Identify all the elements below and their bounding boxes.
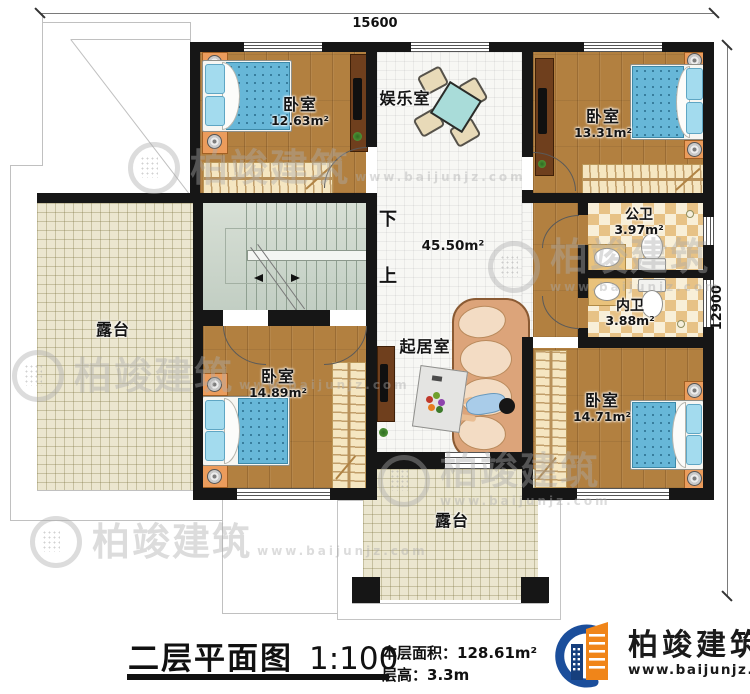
room-name: 娱乐室 (365, 90, 445, 108)
wall-segment (193, 488, 237, 500)
brand-website: www.baijunjz.com (628, 662, 750, 678)
wall-segment (703, 245, 714, 280)
room-area: 3.97m² (594, 223, 684, 237)
wardrobe (203, 162, 333, 195)
wall-segment (193, 193, 377, 203)
pillow (686, 102, 703, 134)
stair-down-label: 下 (376, 210, 400, 231)
pillow (686, 435, 702, 465)
window (703, 217, 714, 245)
wall-segment (522, 488, 577, 500)
room-area: 13.31m² (553, 126, 653, 140)
room-name: 卧室 (250, 96, 350, 114)
room-label-public-bathroom: 公卫 3.97m² (594, 207, 684, 237)
dimension-line-top (40, 13, 715, 14)
room-area: 14.71m² (556, 410, 648, 424)
stair-direction-arrow (254, 274, 263, 282)
wardrobe (332, 362, 366, 489)
brand-text-block: 柏竣建筑 www.baijunjz.com (628, 629, 750, 678)
window (445, 452, 490, 469)
terrace-left-floor (37, 203, 193, 490)
lamp-icon (207, 469, 222, 484)
roof-outline-line (42, 22, 191, 23)
room-name: 卧室 (553, 108, 653, 126)
height-value: 12900 (710, 285, 725, 330)
plant-icon (379, 428, 388, 437)
tv-icon (538, 88, 547, 134)
room-name: 卧室 (556, 392, 648, 410)
title-underline (127, 674, 389, 680)
wall-segment (489, 42, 584, 52)
flower-vase (424, 392, 448, 414)
pillow (205, 431, 225, 461)
wall-segment (490, 452, 522, 469)
person-head (499, 398, 515, 414)
floor-plan-page: 卧室 12.63m² 卧室 13.31m² 卧室 14.89m² 卧室 14.7… (0, 0, 750, 694)
brand-name: 柏竣建筑 (628, 629, 750, 662)
wall-segment (193, 310, 223, 326)
floor-area-row: 本层面积：128.61m² (382, 643, 537, 665)
lamp-icon (687, 471, 702, 486)
lamp-icon (687, 383, 702, 398)
pillow (205, 400, 225, 430)
wall-segment (588, 270, 703, 278)
floor-height-value: 3.3m (427, 666, 469, 684)
roof-outline-line (42, 14, 43, 165)
wall-segment (193, 326, 203, 500)
wall-segment (193, 203, 203, 310)
roof-diagonal-line (70, 39, 190, 195)
wall-segment (190, 42, 200, 203)
pillow (205, 64, 225, 94)
sink (594, 248, 620, 267)
lamp-icon (687, 142, 702, 157)
floor-area-value: 128.61m² (457, 644, 537, 662)
roof-outline-line (10, 165, 43, 166)
terrace-edge-line (37, 490, 194, 491)
tv-icon (380, 364, 388, 402)
room-label-bedroom-bottom-right: 卧室 14.71m² (556, 392, 648, 425)
title-text: 二层平面图 (128, 633, 293, 678)
watermark-logo-icon (30, 516, 82, 568)
wall-segment (522, 337, 533, 500)
wall-segment (578, 203, 588, 215)
wall-segment (377, 452, 445, 469)
pillow (205, 96, 225, 126)
room-name: 公卫 (594, 207, 684, 223)
window (584, 42, 662, 52)
room-label-terrace-bottom: 露台 (412, 512, 492, 530)
watermark-name: 柏竣建筑 (92, 520, 252, 564)
room-name: 起居室 (385, 338, 465, 356)
wall-segment (522, 193, 703, 203)
hall-area-value: 45.50m² (422, 238, 485, 254)
window (577, 488, 669, 500)
window (411, 42, 489, 52)
wall-segment (578, 328, 588, 337)
floor-info: 本层面积：128.61m² 层高：3.3m (382, 643, 537, 687)
hall-area-label: 45.50m² (408, 239, 498, 255)
plant-icon (353, 132, 362, 141)
room-area: 14.89m² (233, 386, 323, 400)
wall-segment (703, 327, 714, 500)
window (237, 488, 330, 500)
stair-up-label: 上 (376, 267, 400, 288)
room-label-living: 起居室 (385, 338, 465, 356)
brand-logo-svg (540, 616, 626, 692)
room-name: 露台 (412, 512, 492, 530)
room-area: 12.63m² (250, 114, 350, 128)
down-text: 下 (379, 209, 397, 230)
room-name: 内卫 (585, 298, 675, 314)
width-value: 15600 (352, 16, 397, 31)
roof-outline-line (10, 165, 11, 520)
room-name: 露台 (73, 321, 153, 339)
pillow (686, 68, 703, 100)
terrace-bottom-floor (363, 469, 538, 600)
roof-outline-line (71, 39, 191, 40)
tv-icon (353, 78, 362, 120)
wall-segment (578, 337, 703, 348)
brand-logo-icon (540, 616, 626, 692)
room-label-private-bathroom: 内卫 3.88m² (585, 298, 675, 328)
wall-segment (330, 488, 376, 500)
dimension-height-label: 12900 (710, 285, 725, 330)
stair-direction-arrow (291, 274, 300, 282)
floor-area-label: 本层面积： (382, 644, 457, 662)
room-label-terrace-left: 露台 (73, 321, 153, 339)
room-label-entertainment: 娱乐室 (365, 90, 445, 108)
lamp-icon (207, 134, 222, 149)
lamp-icon (207, 377, 222, 392)
up-text: 上 (379, 266, 397, 287)
floor-drain-icon (686, 210, 694, 218)
dimension-width-label: 15600 (340, 16, 410, 31)
room-label-bedroom-top-left: 卧室 12.63m² (250, 96, 350, 129)
wall-segment (703, 42, 714, 217)
wall-segment (522, 42, 533, 157)
room-label-bedroom-bottom-left: 卧室 14.89m² (233, 368, 323, 401)
terrace-pillar (521, 577, 549, 603)
terrace-railing-line (222, 613, 338, 614)
terrace-railing-line (352, 603, 548, 604)
wall-segment (193, 42, 244, 52)
wall-segment (669, 488, 703, 500)
wall-segment (366, 193, 377, 500)
wall-segment (37, 193, 200, 203)
room-label-bedroom-top-right: 卧室 13.31m² (553, 108, 653, 141)
floor-height-row: 层高：3.3m (382, 665, 537, 687)
drawing-title: 二层平面图 1:100 (128, 633, 398, 678)
dimension-line-right (727, 45, 728, 597)
room-area: 3.88m² (585, 314, 675, 328)
roof-outline-line (10, 520, 223, 521)
pillow (686, 404, 702, 434)
mattress (238, 398, 288, 464)
window (244, 42, 322, 52)
wall-segment (578, 245, 588, 298)
floor-height-label: 层高： (382, 666, 427, 684)
roof-outline-line (222, 487, 223, 614)
room-name: 卧室 (233, 368, 323, 386)
floor-drain-icon (677, 320, 685, 328)
terrace-pillar (352, 577, 380, 603)
wall-segment (268, 310, 330, 326)
